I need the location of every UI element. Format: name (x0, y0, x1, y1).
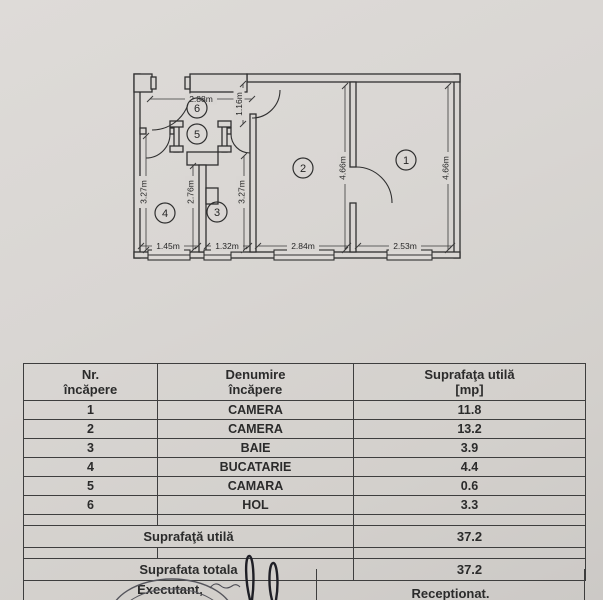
svg-text:2.53m: 2.53m (393, 241, 417, 251)
receptionat-cell: Receptionat. (317, 569, 584, 600)
cell-name: CAMERA (158, 420, 354, 439)
wall-rooms12-upper (350, 82, 356, 167)
door-arc-bath (231, 134, 250, 153)
table-row: 4 BUCATARIE 4.4 (24, 458, 586, 477)
floor-plan-drawing: 2.88m 1.16m 3.27m 2.76m 3.27m 4.66m (0, 0, 603, 345)
room-number-1: 1 (403, 155, 409, 167)
cell-name: CAMARA (158, 477, 354, 496)
door-arc-room2 (252, 90, 280, 118)
receptionat-label: Receptionat. (411, 586, 489, 600)
cell-nr: 5 (24, 477, 158, 496)
closet-wall-left (174, 122, 179, 152)
svg-text:3.27m: 3.27m (237, 180, 247, 204)
window-kitchen (148, 250, 190, 260)
door-arc-kitchen (146, 134, 170, 158)
spacer-row (24, 515, 586, 526)
wall-bath-notch (206, 188, 218, 204)
svg-text:2.88m: 2.88m (189, 94, 213, 104)
window-bath (204, 250, 231, 260)
cell-nr: 6 (24, 496, 158, 515)
room-number-2: 2 (300, 163, 306, 175)
total-useful-row: Suprafaţă utilă 37.2 (24, 526, 586, 548)
svg-text:2.84m: 2.84m (291, 241, 315, 251)
room-number-4: 4 (162, 208, 168, 220)
room-circle-3 (207, 202, 227, 222)
room-circle-1 (396, 150, 416, 170)
table-row: 6 HOL 3.3 (24, 496, 586, 515)
closet-cap-left-top (170, 121, 183, 127)
table-header-row: Nr.încăpere Denumireîncăpere Suprafaţa u… (24, 364, 586, 401)
room-number-5: 5 (194, 129, 200, 141)
header-nr: Nr.încăpere (24, 364, 158, 401)
header-suprafata: Suprafaţa utilă[mp] (354, 364, 586, 401)
closet-wall-right (222, 122, 227, 152)
svg-text:1.32m: 1.32m (215, 241, 239, 251)
wall-bath-top-stub (227, 128, 231, 134)
total-useful-label: Suprafaţă utilă (24, 526, 354, 548)
dim-room2-height: 4.66m (337, 152, 348, 184)
header-denumire: Denumireîncăpere (158, 364, 354, 401)
wall-left (134, 74, 140, 258)
dim-room2-width: 2.84m (287, 241, 319, 252)
dim-kitchen-height: 3.27m (138, 176, 149, 208)
entry-jamb-right (185, 77, 190, 89)
cell-area: 11.8 (354, 401, 586, 420)
wall-kitchen-top-stub (140, 128, 146, 134)
wall-top-right (247, 74, 460, 82)
wall-kitchen-closet (170, 128, 174, 134)
dim-bath-height: 3.27m (236, 176, 247, 208)
dim-room1-height: 4.66m (440, 152, 451, 184)
svg-text:4.66m: 4.66m (441, 156, 451, 180)
closet-cap-left-bottom (170, 146, 183, 152)
cell-name: HOL (158, 496, 354, 515)
closet-cap-right-bottom (218, 146, 231, 152)
table-row: 3 BAIE 3.9 (24, 439, 586, 458)
dim-entry-depth: 1.16m (234, 88, 245, 120)
wall-kitchen-bath (199, 165, 206, 252)
spacer-row (24, 548, 586, 559)
cell-name: CAMERA (158, 401, 354, 420)
cell-area: 3.3 (354, 496, 586, 515)
window-room2 (274, 250, 334, 260)
svg-text:3.27m: 3.27m (139, 180, 149, 204)
cell-nr: 3 (24, 439, 158, 458)
table-row: 2 CAMERA 13.2 (24, 420, 586, 439)
room-circle-4 (155, 203, 175, 223)
room-number-3: 3 (214, 207, 220, 219)
dim-hall-width: 2.88m (185, 94, 217, 105)
executant-cell: Executant, (24, 569, 317, 600)
cell-name: BAIE (158, 439, 354, 458)
pier-below-closet (187, 152, 218, 165)
table-row: 5 CAMARA 0.6 (24, 477, 586, 496)
svg-text:1.45m: 1.45m (156, 241, 180, 251)
cell-area: 13.2 (354, 420, 586, 439)
closet-cap-right-top (218, 121, 231, 127)
wall-top-left-b (190, 74, 247, 92)
wall-right (454, 74, 460, 258)
svg-text:4.66m: 4.66m (338, 156, 348, 180)
room-areas-table: Nr.încăpere Denumireîncăpere Suprafaţa u… (23, 363, 586, 581)
svg-text:1.16m: 1.16m (234, 92, 244, 116)
svg-text:2.76m: 2.76m (186, 180, 196, 204)
room-circle-6 (187, 98, 207, 118)
dim-room1-width: 2.53m (389, 241, 421, 252)
wall-hall-room2 (250, 114, 256, 252)
cell-nr: 1 (24, 401, 158, 420)
dim-inner-height: 2.76m (185, 176, 196, 208)
door-arc-entry (152, 92, 190, 130)
cell-nr: 4 (24, 458, 158, 477)
cell-nr: 2 (24, 420, 158, 439)
cell-name: BUCATARIE (158, 458, 354, 477)
cell-area: 3.9 (354, 439, 586, 458)
wall-top-left-a (134, 74, 152, 92)
signature-section: Executant, Receptionat. (23, 569, 585, 600)
dim-bath-width: 1.32m (211, 241, 243, 252)
wall-bottom (134, 252, 460, 258)
room-circle-2 (293, 158, 313, 178)
table-row: 1 CAMERA 11.8 (24, 401, 586, 420)
room-circle-5 (187, 124, 207, 144)
door-arc-room1 (356, 167, 392, 203)
total-useful-value: 37.2 (354, 526, 586, 548)
wall-rooms12-lower (350, 203, 356, 252)
cell-area: 0.6 (354, 477, 586, 496)
executant-label: Executant, (137, 582, 203, 597)
scanned-document-page: 2.88m 1.16m 3.27m 2.76m 3.27m 4.66m (0, 0, 603, 600)
window-room1 (387, 250, 432, 260)
dim-kitchen-width: 1.45m (152, 241, 184, 252)
cell-area: 4.4 (354, 458, 586, 477)
room-number-6: 6 (194, 103, 200, 115)
entry-jamb-left (151, 77, 156, 89)
